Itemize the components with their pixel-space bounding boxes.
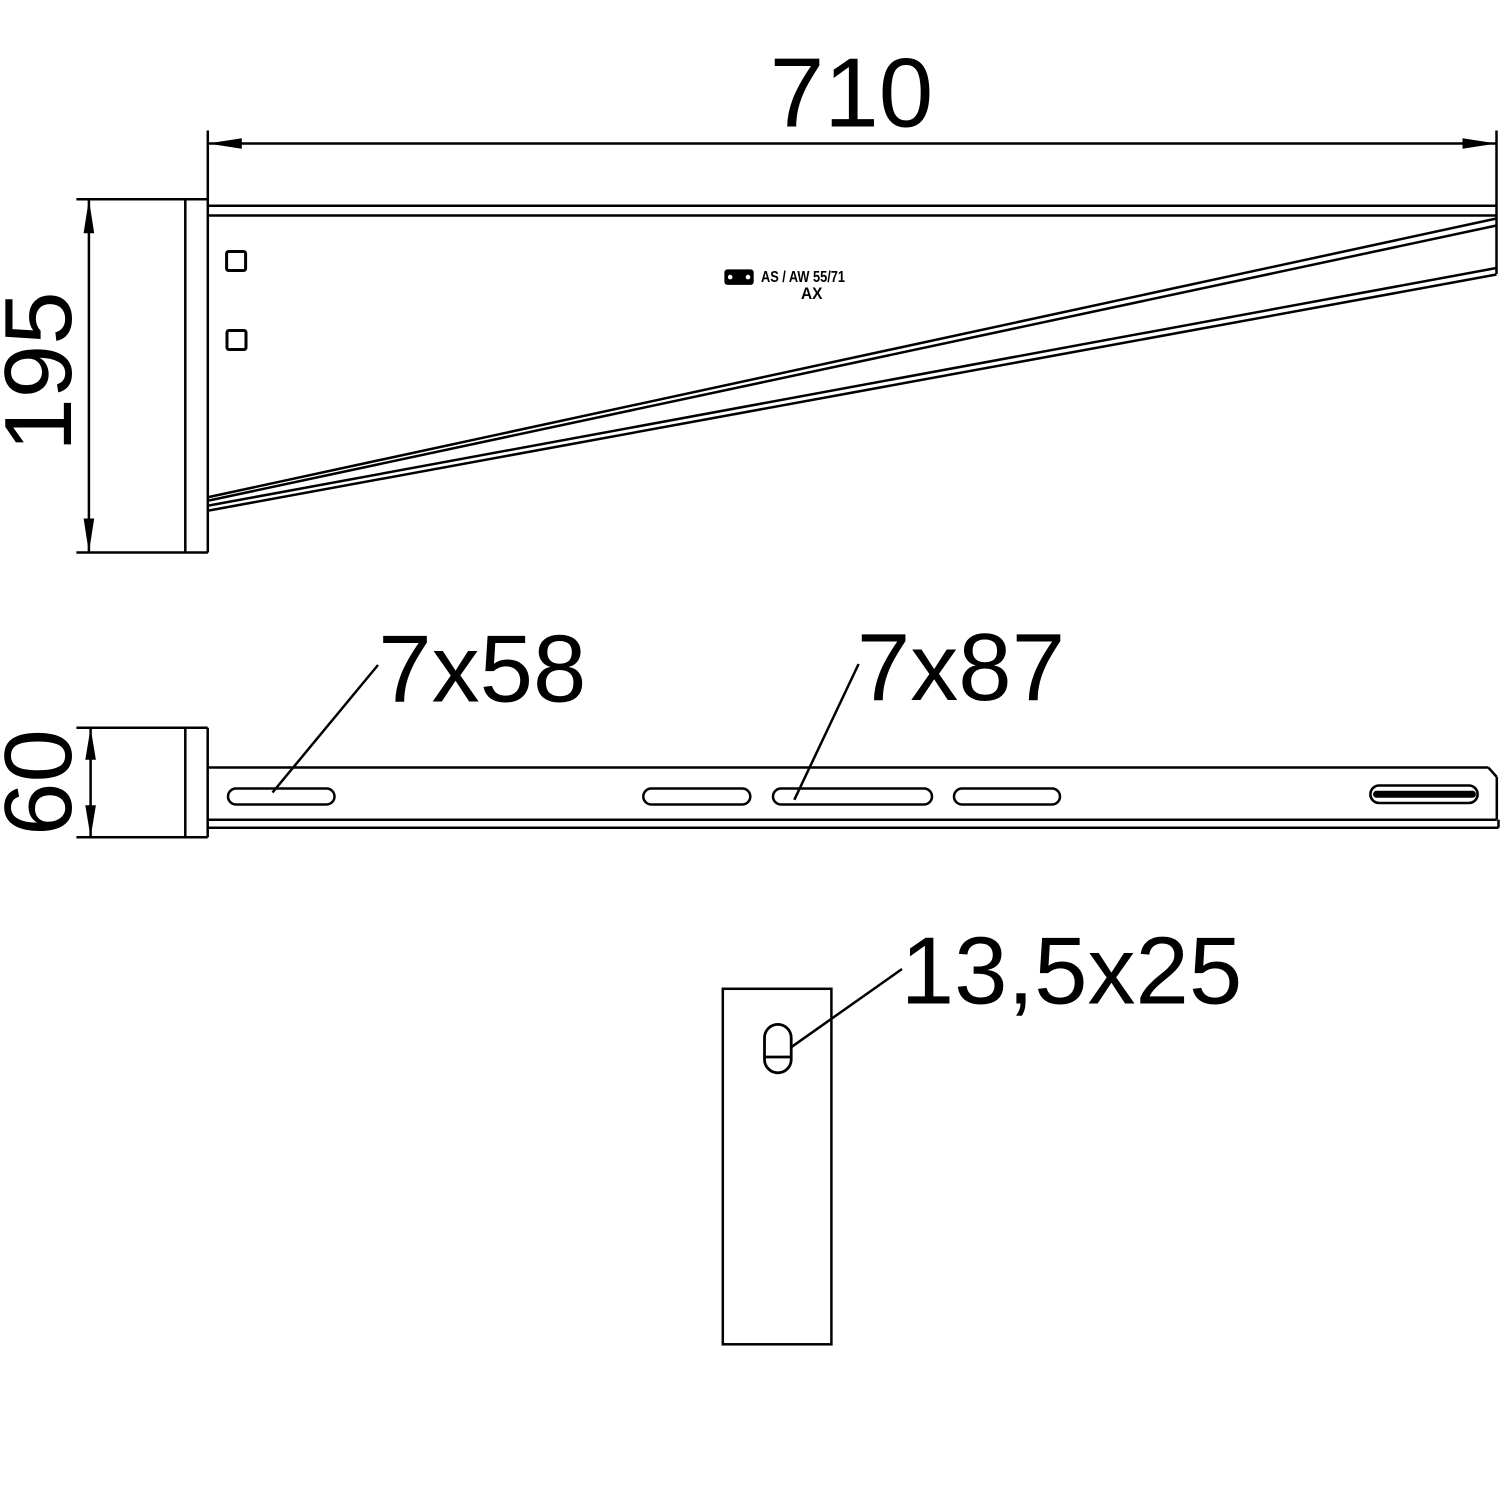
- svg-text:710: 710: [770, 37, 934, 147]
- svg-text:7x87: 7x87: [857, 614, 1065, 721]
- svg-text:195: 195: [0, 291, 92, 451]
- svg-text:60: 60: [0, 729, 92, 836]
- svg-text:13,5x25: 13,5x25: [901, 918, 1243, 1025]
- svg-text:7x58: 7x58: [378, 616, 586, 723]
- svg-text:AX: AX: [801, 284, 823, 303]
